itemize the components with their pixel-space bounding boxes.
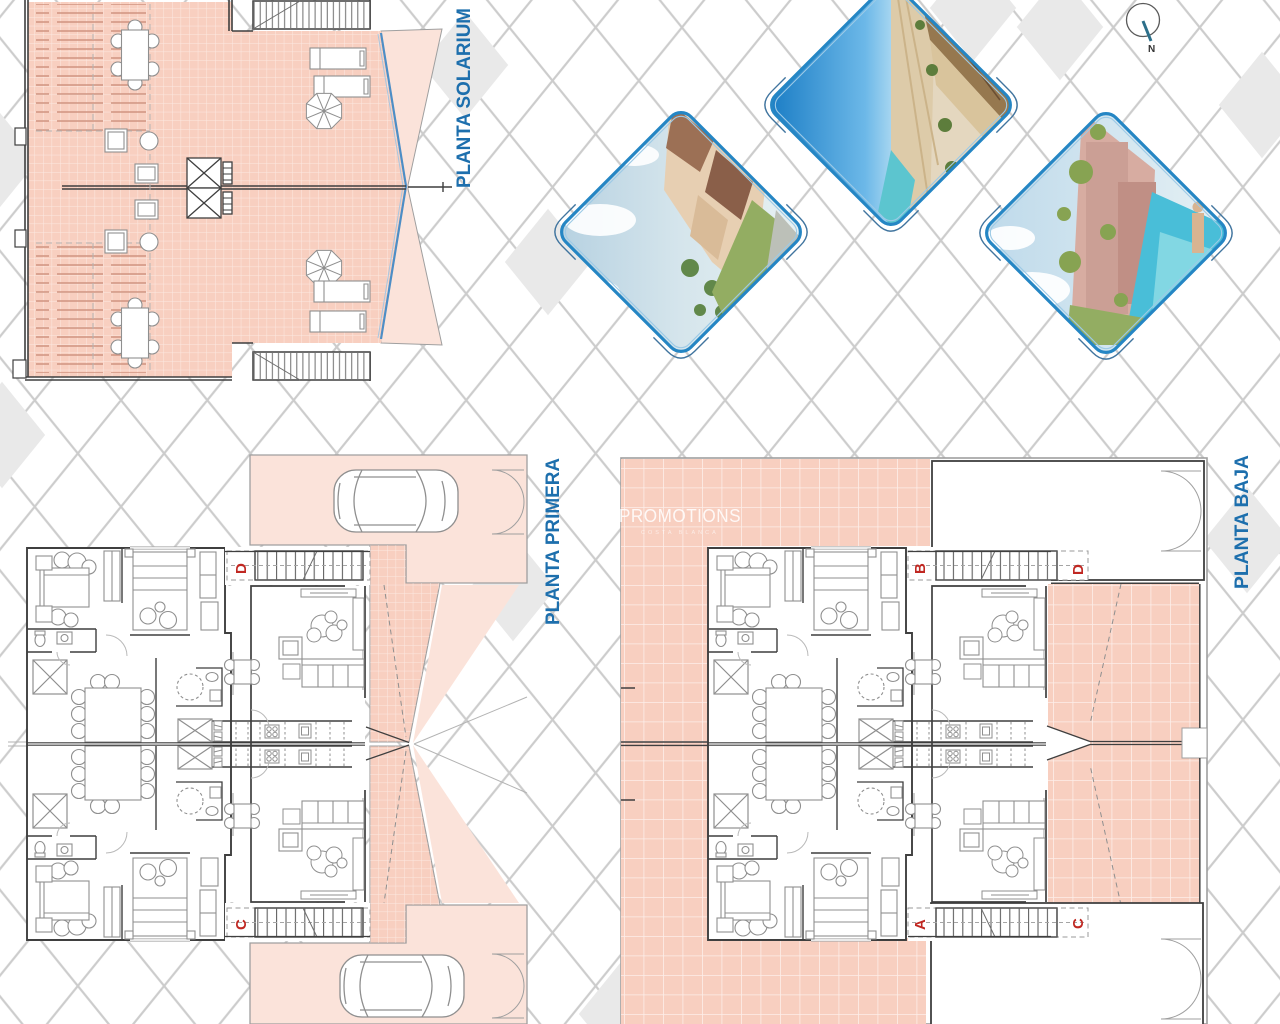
svg-text:C: C (233, 919, 250, 930)
svg-text:PLANTA SOLARIUM: PLANTA SOLARIUM (454, 8, 475, 188)
svg-text:PLANTA BAJA: PLANTA BAJA (1232, 455, 1253, 589)
svg-text:D: D (1070, 564, 1087, 575)
svg-text:D: D (233, 563, 250, 574)
svg-text:PLANTA PRIMERA: PLANTA PRIMERA (543, 458, 564, 625)
svg-text:COSTA BLANCA: COSTA BLANCA (641, 530, 719, 536)
svg-text:A: A (912, 919, 929, 930)
svg-text:PROMOTIONS: PROMOTIONS (619, 506, 741, 526)
svg-text:B: B (912, 563, 929, 574)
svg-text:N: N (1148, 44, 1155, 55)
svg-text:C: C (1070, 918, 1087, 929)
